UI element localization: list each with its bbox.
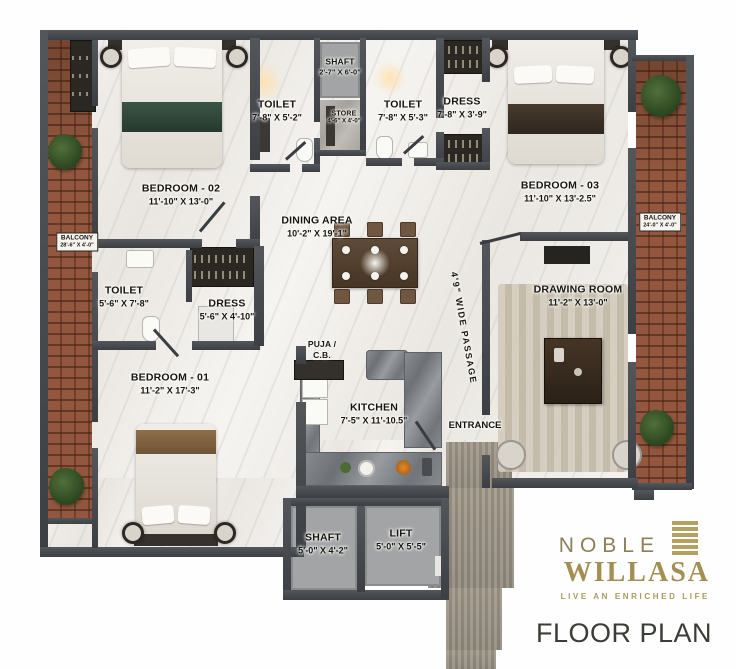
bed-bedroom-02: [108, 38, 236, 170]
wall-balcony-left-inner: [92, 448, 98, 548]
pillow: [127, 47, 170, 69]
wall-dress-top-bottom: [436, 162, 490, 170]
room-name: BALCONY: [643, 215, 677, 223]
brand-tagline: LIVE AN ENRICHED LIFE: [561, 592, 710, 601]
wall-shaftlift-left: [283, 498, 291, 598]
bedside-lamp-icon: [226, 46, 248, 68]
room-dims: 5'-6" X 7'-8": [99, 298, 149, 310]
floor-plan-canvas: BEDROOM - 02 11'-10" X 13'-0" TOILET 7'-…: [0, 0, 736, 669]
entrance-path: [446, 588, 502, 650]
bar: [672, 545, 698, 549]
room-name: DRESS: [437, 95, 487, 109]
label-bedroom01: BEDROOM - 01 11'-2" X 17'-3": [131, 371, 209, 396]
room-name: BEDROOM - 01: [131, 371, 209, 385]
room-dims: 4'-6" X 4'-0": [327, 119, 360, 127]
wall-bedroom03-bottom: [520, 232, 632, 241]
room-name: KITCHEN: [341, 401, 408, 415]
room-name: PUJA /: [308, 339, 336, 350]
wall-toilet-dress-divider: [186, 250, 192, 302]
bed-bedroom-01: [134, 424, 218, 546]
shelf-line: [72, 56, 94, 60]
room-dims: 7'-5" X 11'-10.5": [341, 415, 408, 427]
label-shaft-bottom: SHAFT 5'-0" X 4'-2": [298, 531, 348, 556]
wall-toilet-mid-bottom: [192, 341, 260, 350]
wall-balcony-right-outer: [686, 55, 694, 489]
wall-shaftlift-bottom: [283, 590, 449, 600]
hanger-rail: [441, 154, 481, 162]
wall-toilet-tr-bottom: [366, 158, 402, 166]
label-bedroom02: BEDROOM - 02 11'-10" X 13'-0": [142, 182, 220, 207]
hanger-rail: [194, 255, 250, 263]
room-name: C.B.: [308, 350, 336, 361]
side-table-round: [612, 440, 642, 470]
plate: [342, 246, 350, 254]
room-name: STORE: [327, 110, 360, 119]
room-name: TOILET: [99, 284, 149, 298]
wall-shaftlift-right: [441, 498, 449, 598]
pillow: [556, 65, 595, 84]
room-dims: 24'-0" X 4'-0": [643, 223, 677, 230]
shelf-line: [72, 74, 94, 78]
toilet-bowl-icon: [376, 136, 393, 160]
herb-pot-icon: [340, 462, 351, 473]
bed-blanket: [122, 102, 222, 132]
kitchen-counter-top: [366, 350, 408, 380]
dining-chair: [334, 289, 350, 304]
room-dims: 2'-7" X 6'-0": [319, 68, 361, 78]
room-name: TOILET: [378, 98, 428, 112]
wall-bedroom01-right: [296, 402, 306, 548]
room-name: ENTRANCE: [449, 420, 502, 431]
toilet-bowl-icon: [142, 316, 160, 342]
wall-shaftlift-top: [283, 498, 449, 506]
bar: [672, 527, 698, 531]
label-puja: PUJA / C.B.: [308, 339, 336, 361]
pillow: [514, 65, 553, 84]
room-dims: 7'-8" X 5'-3": [378, 112, 428, 124]
hanger-rail: [441, 46, 481, 54]
room-name: DRESS: [200, 297, 255, 311]
coffee-table: [544, 338, 602, 404]
plate: [400, 246, 408, 254]
label-balcony-left: BALCONY 28'-6" X 4'-0": [56, 233, 98, 252]
dining-chair: [367, 222, 383, 237]
label-drawing-room: DRAWING ROOM 11'-2" X 13'-0": [534, 283, 623, 308]
table-light-glow: [360, 248, 390, 278]
wash-basin-icon: [126, 250, 154, 268]
brand-name: NOBLE: [559, 534, 660, 558]
bedside-lamp-icon: [100, 46, 122, 68]
room-name: LIFT: [376, 527, 426, 541]
label-bedroom03: BEDROOM - 03 11'-10" X 13'-2.5": [521, 179, 599, 204]
label-dining: DINING AREA 10'-2" X 19'-1": [281, 214, 352, 239]
room-dims: 11'-10" X 13'-0": [142, 196, 220, 208]
table-decor: [574, 368, 582, 376]
room-name: DINING AREA: [281, 214, 352, 228]
kitchen-counter-bottom: [300, 452, 442, 486]
wall-balcony-right-bottom: [632, 483, 692, 490]
plate: [400, 272, 408, 280]
room-name: BEDROOM - 02: [142, 182, 220, 196]
dining-chair: [367, 289, 383, 304]
label-balcony-right: BALCONY 24'-0" X 4'-0": [639, 213, 681, 232]
bedside-lamp-icon: [214, 522, 236, 544]
sink-icon: [358, 460, 375, 477]
wall-toilet-tl-right: [314, 38, 320, 122]
bar: [672, 521, 698, 525]
label-entrance: ENTRANCE: [449, 420, 502, 432]
wall-bedroom01-right: [296, 346, 306, 364]
plan-title: FLOOR PLAN: [536, 618, 712, 649]
label-store: STORE 4'-6" X 4'-0": [327, 110, 360, 127]
room-dims: 7'-8" X 5'-2": [252, 112, 302, 124]
dining-chair: [400, 222, 416, 237]
wall-toilet-tl-bottom: [302, 164, 320, 172]
label-toilet-top-left: TOILET 7'-8" X 5'-2": [252, 98, 302, 123]
brand-bars-icon: [672, 521, 698, 557]
wall-right-inner: [628, 40, 636, 112]
wall-dress-top-right: [482, 38, 490, 82]
entrance-path: [446, 650, 496, 669]
room-name: SHAFT: [298, 531, 348, 545]
room-dims: 7'-8" X 3'-9": [437, 109, 487, 121]
room-name: BALCONY: [60, 235, 94, 243]
wall-outer-top: [40, 30, 638, 40]
label-shaft-top: SHAFT 2'-7" X 6'-0": [319, 57, 361, 78]
wall-outer-left: [40, 30, 48, 557]
room-name: DRAWING ROOM: [534, 283, 623, 297]
dining-chair: [400, 289, 416, 304]
wardrobe-dress-top: [438, 40, 484, 74]
wall-balcony-left-end: [48, 518, 92, 524]
room-name: SHAFT: [319, 57, 361, 68]
room-dims: 28'-6" X 4'-0": [60, 243, 94, 250]
bar: [672, 533, 698, 537]
room-dims: 11'-2" X 13'-0": [534, 297, 623, 309]
wall-balcony-left-inner: [92, 128, 98, 246]
wall-dress-mid-right: [254, 246, 264, 346]
wall-right-inner: [628, 148, 636, 334]
label-lift: LIFT 5'-0" X 5'-5": [376, 527, 426, 552]
table-decor: [554, 348, 564, 362]
wall-passage-right: [482, 240, 490, 415]
wall-balcony-right-top: [632, 55, 692, 61]
room-name: BEDROOM - 03: [521, 179, 599, 193]
hanger-rail: [441, 60, 481, 68]
wall-step-notch: [634, 490, 654, 500]
label-dress-mid: DRESS 5'-6" X 4'-10": [200, 297, 255, 322]
plate: [342, 272, 350, 280]
bedside-lamp-icon: [122, 522, 144, 544]
wall-shaftlift-divider: [357, 506, 365, 592]
bed-headboard: [134, 534, 218, 546]
room-dims: 10'-2" X 19'-1": [281, 228, 352, 240]
wall-toilet-mid-bottom: [92, 341, 156, 350]
wall-shaft-column-right: [360, 38, 366, 154]
stove-dish-icon: [396, 460, 411, 475]
bar: [672, 539, 698, 543]
hanger-rail: [441, 140, 481, 148]
wall-drawing-bottom: [492, 478, 638, 488]
shelf-line: [72, 92, 94, 96]
room-name: TOILET: [252, 98, 302, 112]
pillow: [174, 47, 217, 68]
kettle-icon: [422, 458, 432, 476]
pillow: [177, 505, 210, 525]
hanger-rail: [194, 271, 250, 279]
bed-mattress: [508, 40, 604, 164]
room-dims: 5'-6" X 4'-10": [200, 311, 255, 323]
wall-outer-bottom-left: [40, 547, 304, 557]
wall-kitchen-bottom: [296, 486, 449, 498]
side-table-round: [496, 440, 526, 470]
room-dims: 11'-10" X 13'-2.5": [521, 193, 599, 205]
room-dims: 5'-0" X 4'-2": [298, 545, 348, 557]
room-dims: 5'-0" X 5'-5": [376, 541, 426, 553]
pillow: [141, 505, 174, 526]
bed-bedroom-03: [492, 38, 620, 166]
wardrobe-dress-mid: [190, 247, 254, 287]
label-dress-top: DRESS 7'-8" X 3'-9": [437, 95, 487, 120]
label-kitchen: KITCHEN 7'-5" X 11'-10.5": [341, 401, 408, 426]
wall-balcony-left-inner: [92, 40, 98, 106]
brand-logo: WILLASA: [564, 557, 710, 589]
wall-entrance-jamb: [482, 455, 490, 488]
wall-right-inner: [628, 362, 636, 488]
light-glow: [372, 60, 408, 96]
label-toilet-mid: TOILET 5'-6" X 7'-8": [99, 284, 149, 309]
wall-store-bottom: [314, 150, 366, 156]
bed-blanket: [136, 430, 216, 454]
tv-console: [544, 246, 590, 264]
wall-toilet-tl-bottom: [250, 164, 290, 172]
bed-blanket: [508, 104, 604, 134]
label-toilet-top-right: TOILET 7'-8" X 5'-3": [378, 98, 428, 123]
wall-bedroom02-bottom: [92, 239, 202, 248]
bar: [672, 551, 698, 555]
room-dims: 11'-2" X 17'-3": [131, 385, 209, 397]
